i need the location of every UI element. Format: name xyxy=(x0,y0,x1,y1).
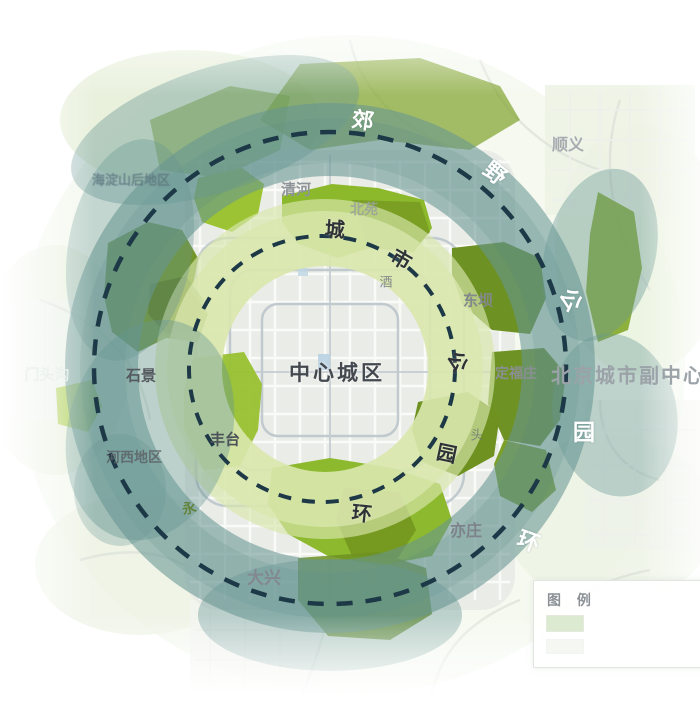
legend-swatch-faint xyxy=(546,639,584,654)
legend-box: 图 例 xyxy=(533,580,700,668)
inner-ring-char-huan: 环 xyxy=(351,497,374,528)
outer-ring-char-yuan: 园 xyxy=(573,415,595,447)
inner-ring-char-cheng: 城 xyxy=(324,213,346,243)
beijing-park-rings-map: 郊 野 公 园 环 城 市 公 园 环 中心城区 顺义 清河 北苑 海淀山后地区… xyxy=(0,0,700,726)
legend-swatch-light-green xyxy=(546,615,584,632)
outer-ring-char-jiao: 郊 xyxy=(350,102,376,137)
legend-title: 图 例 xyxy=(547,590,700,610)
